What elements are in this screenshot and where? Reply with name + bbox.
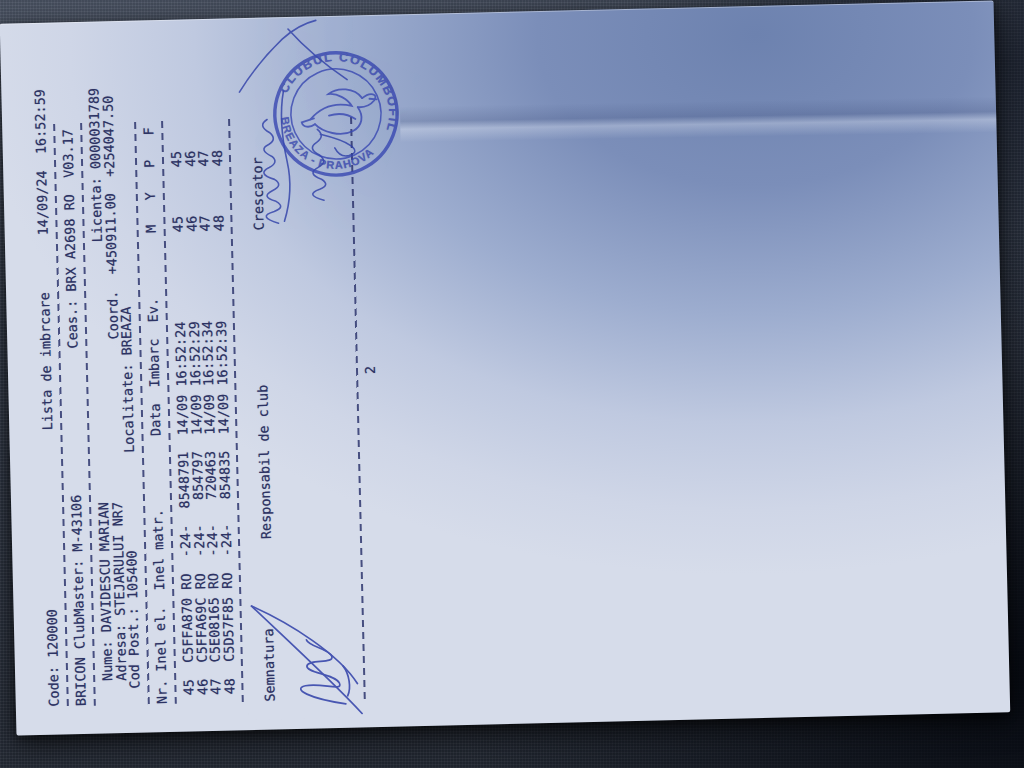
- stamp-ring-text-top: CLUBUL COLUMBOFIL: [276, 31, 418, 135]
- row-date: 14/09: [216, 394, 230, 435]
- row-nr: 48: [223, 678, 237, 695]
- col-f: F: [142, 127, 156, 135]
- svg-text:CLUBUL COLUMBOFIL: CLUBUL COLUMBOFIL: [276, 31, 418, 135]
- row-m: 48: [212, 215, 226, 232]
- pigeon-icon: [301, 74, 378, 146]
- col-imbarc: Imbarc: [147, 338, 162, 387]
- col-y: Y: [144, 192, 158, 200]
- club-stamp: CLUBUL COLUMBOFIL BREAZA - PRAHOVA: [268, 46, 403, 181]
- row-matr: 854835: [217, 451, 232, 508]
- col-p: P: [143, 160, 157, 168]
- col-m: M: [145, 225, 159, 233]
- desk-background: Code: 120000 Lista de imbrcare 14/09/24 …: [0, 0, 1024, 768]
- row-p: 48: [210, 150, 224, 167]
- page-number: 2: [364, 366, 378, 374]
- col-ev: Ev.: [146, 298, 160, 323]
- col-nr: Nr.: [155, 680, 169, 705]
- printed-document: Code: 120000 Lista de imbrcare 14/09/24 …: [0, 0, 1010, 735]
- col-data: Data: [149, 403, 163, 436]
- document-page: Code: 120000 Lista de imbrcare 14/09/24 …: [0, 0, 1010, 735]
